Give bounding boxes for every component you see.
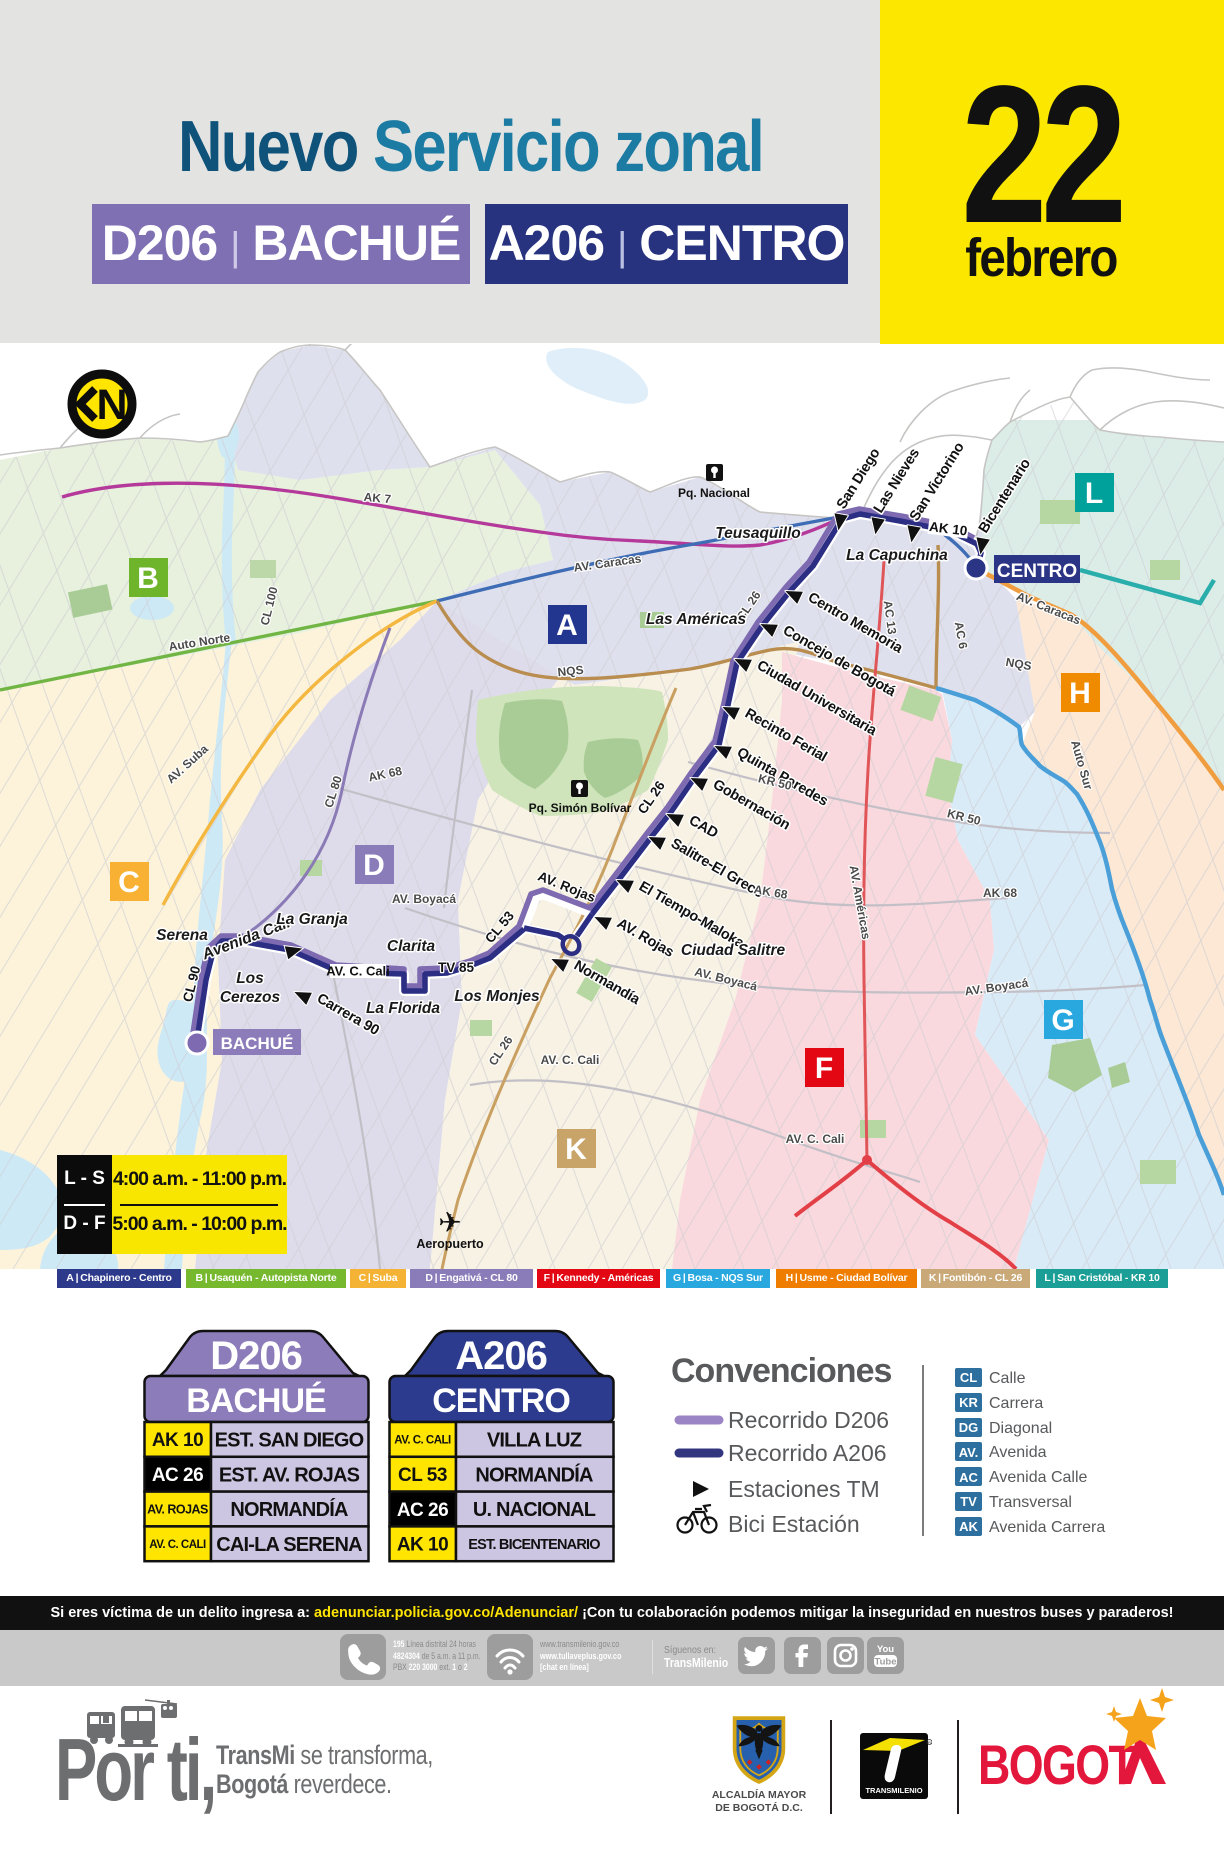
svg-text:CL: CL bbox=[960, 1370, 977, 1385]
svg-text:AV. Boyacá: AV. Boyacá bbox=[392, 892, 456, 906]
svg-text:Avenida Calle: Avenida Calle bbox=[989, 1469, 1088, 1486]
svg-text:AK: AK bbox=[959, 1519, 978, 1534]
svg-text:BACHUÉ: BACHUÉ bbox=[221, 1034, 294, 1053]
svg-text:K: K bbox=[565, 1133, 587, 1166]
svg-text:TV 85: TV 85 bbox=[438, 960, 475, 975]
svg-text:KR: KR bbox=[959, 1395, 978, 1410]
svg-text:H: H bbox=[1069, 677, 1091, 710]
svg-text:Aeropuerto: Aeropuerto bbox=[416, 1237, 484, 1251]
svg-text:F: F bbox=[815, 1052, 833, 1085]
svg-text:Transversal: Transversal bbox=[989, 1494, 1072, 1511]
svg-text:AC 26: AC 26 bbox=[397, 1500, 448, 1521]
svg-text:TRANSMILENIO: TRANSMILENIO bbox=[865, 1786, 922, 1795]
svg-text:A206: A206 bbox=[455, 1334, 547, 1378]
svg-text:NORMANDÍA: NORMANDÍA bbox=[475, 1463, 593, 1486]
svg-text:G: G bbox=[1051, 1004, 1074, 1037]
svg-text:N: N bbox=[96, 381, 127, 429]
svg-text:AK 10: AK 10 bbox=[152, 1430, 203, 1451]
svg-text:Avenida: Avenida bbox=[989, 1444, 1047, 1461]
svg-text:Las Américas: Las Américas bbox=[646, 611, 747, 628]
svg-text:EST. BICENTENARIO: EST. BICENTENARIO bbox=[468, 1537, 600, 1553]
svg-text:You: You bbox=[877, 1644, 894, 1655]
svg-text:AV. C. Cali: AV. C. Cali bbox=[326, 964, 390, 979]
svg-text:DG: DG bbox=[959, 1420, 979, 1435]
svg-text:A: A bbox=[556, 609, 578, 642]
svg-text:AV.: AV. bbox=[959, 1445, 979, 1460]
svg-text:D: D bbox=[363, 849, 385, 882]
svg-text:NORMANDÍA: NORMANDÍA bbox=[230, 1498, 348, 1521]
svg-text:TV: TV bbox=[960, 1494, 977, 1509]
svg-text:Estaciones TM: Estaciones TM bbox=[728, 1476, 880, 1502]
svg-text:AK 10: AK 10 bbox=[397, 1535, 448, 1556]
svg-text:L: L bbox=[1085, 477, 1103, 510]
svg-text:C: C bbox=[118, 866, 140, 899]
svg-text:Pq. Simón Bolívar: Pq. Simón Bolívar bbox=[529, 801, 632, 815]
svg-text:Avenida Carrera: Avenida Carrera bbox=[989, 1519, 1105, 1536]
svg-text:AV. ROJAS: AV. ROJAS bbox=[147, 1503, 208, 1517]
svg-text:Ciudad Salitre: Ciudad Salitre bbox=[681, 942, 786, 959]
svg-text:EST. SAN DIEGO: EST. SAN DIEGO bbox=[215, 1430, 364, 1452]
svg-text:AV. C. Cali: AV. C. Cali bbox=[541, 1053, 600, 1067]
svg-text:CL 53: CL 53 bbox=[398, 1465, 447, 1486]
svg-text:Calle: Calle bbox=[989, 1370, 1026, 1387]
svg-text:✈: ✈ bbox=[438, 1207, 461, 1238]
svg-text:La Granja: La Granja bbox=[276, 911, 348, 928]
svg-text:AC 26: AC 26 bbox=[152, 1465, 203, 1486]
svg-text:BACHUÉ: BACHUÉ bbox=[186, 1382, 326, 1420]
svg-text:AV. C. Cali: AV. C. Cali bbox=[786, 1132, 845, 1146]
svg-text:CENTRO: CENTRO bbox=[997, 561, 1077, 582]
svg-text:Los: Los bbox=[236, 970, 264, 987]
svg-text:U. NACIONAL: U. NACIONAL bbox=[473, 1499, 596, 1521]
svg-text:CENTRO: CENTRO bbox=[432, 1382, 570, 1420]
svg-text:Diagonal: Diagonal bbox=[989, 1420, 1052, 1437]
svg-text:AC: AC bbox=[959, 1470, 978, 1485]
svg-text:CAI-LA SERENA: CAI-LA SERENA bbox=[216, 1534, 362, 1556]
svg-text:NQS: NQS bbox=[557, 663, 584, 680]
svg-text:La Capuchina: La Capuchina bbox=[846, 547, 948, 564]
svg-text:Recorrido A206: Recorrido A206 bbox=[728, 1440, 887, 1466]
svg-text:VILLA LUZ: VILLA LUZ bbox=[487, 1430, 582, 1452]
svg-text:B: B bbox=[137, 562, 159, 595]
svg-text:Pq. Nacional: Pq. Nacional bbox=[678, 486, 750, 500]
svg-text:AK 68: AK 68 bbox=[983, 886, 1017, 900]
svg-text:Clarita: Clarita bbox=[387, 938, 436, 955]
svg-text:Los Monjes: Los Monjes bbox=[454, 988, 540, 1005]
svg-text:Teusaquillo: Teusaquillo bbox=[715, 525, 801, 542]
svg-text:AV. C. CALI: AV. C. CALI bbox=[149, 1539, 206, 1551]
svg-text:Cerezos: Cerezos bbox=[220, 989, 281, 1006]
svg-text:R: R bbox=[928, 1740, 931, 1745]
svg-text:Recorrido D206: Recorrido D206 bbox=[728, 1408, 889, 1433]
svg-text:Serena: Serena bbox=[156, 927, 208, 944]
svg-text:D206: D206 bbox=[210, 1334, 302, 1378]
svg-text:Bici Estación: Bici Estación bbox=[728, 1511, 860, 1537]
svg-text:AK 7: AK 7 bbox=[363, 490, 392, 506]
svg-text:EST. AV. ROJAS: EST. AV. ROJAS bbox=[219, 1464, 360, 1486]
svg-text:La Florida: La Florida bbox=[366, 1000, 440, 1017]
svg-text:Tube: Tube bbox=[875, 1657, 897, 1668]
svg-text:BOGOT: BOGOT bbox=[978, 1733, 1136, 1791]
svg-text:AV. C. CALI: AV. C. CALI bbox=[394, 1435, 451, 1447]
svg-text:Carrera: Carrera bbox=[989, 1395, 1043, 1412]
